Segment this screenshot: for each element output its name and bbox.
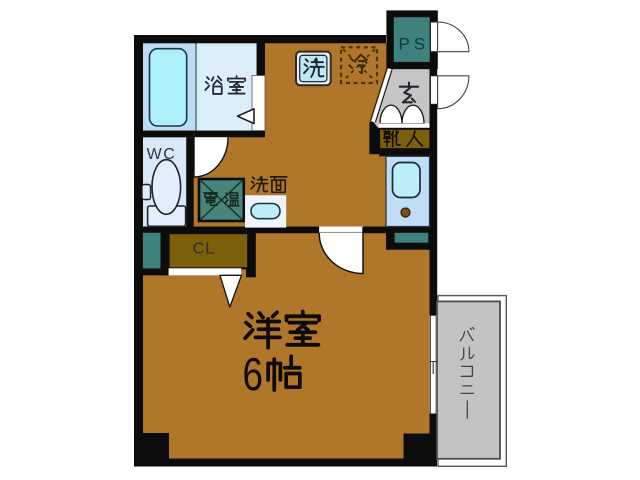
svg-text:6: 6 (243, 348, 263, 400)
svg-text:PS: PS (398, 35, 429, 54)
svg-text:CL: CL (193, 241, 215, 258)
